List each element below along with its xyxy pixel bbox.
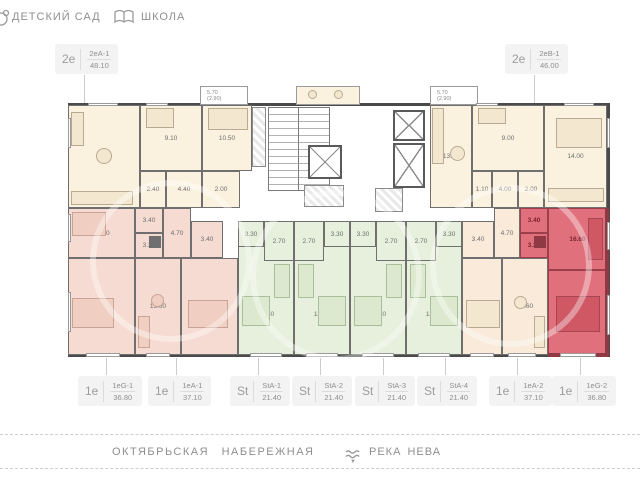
school-label: ШКОЛА [141,11,185,23]
street-label: ОКТЯБРЬСКАЯ НАБЕРЕЖНАЯ [112,446,315,458]
window [508,353,536,357]
kitchen-counter [298,264,314,298]
window [564,103,594,106]
chip-code: 1еG-2 [584,381,609,392]
bed [354,296,382,326]
room-area: 10.50 [219,135,235,142]
chip-code: StA-1 [260,381,283,392]
room-area: 9.10 [165,135,178,142]
window [68,118,71,148]
kitchen-counter [410,264,426,298]
chip-area: 21.40 [449,393,468,402]
room-area: 2.00 [215,186,228,193]
room: 2.70 [406,221,436,261]
room-area: 9.00 [502,135,515,142]
chip-type-label: St [237,384,248,398]
room-area: 2.70 [303,238,316,245]
sofa [534,316,545,348]
shaft [304,185,344,207]
bed [72,212,106,236]
window [418,353,450,357]
window [146,103,168,106]
room: 4.70 [494,208,520,258]
chip-type-label: 1е [85,384,98,398]
chip-area: 21.40 [262,393,281,402]
room: 4.00 [492,171,518,208]
shaft [252,107,266,167]
sofa [588,218,603,260]
window [306,353,338,357]
leader-line [445,358,446,375]
room-area: 3.30 [245,231,258,238]
teddy-bear-icon [0,7,11,27]
apartment-chip-1eG-1[interactable]: 1е 1еG-1 36.80 [78,376,142,406]
school-book-icon [113,9,135,25]
balcony-2eA-1: 5.70 (2.90) [200,86,248,105]
leader-line [258,358,259,375]
chip-type-label: 2е [512,52,525,66]
room-area: 2.70 [385,238,398,245]
room: 2.70 [264,221,294,261]
room-area: 2.70 [415,238,428,245]
room-area: 3.40 [528,217,541,224]
shared-balcony [296,86,360,105]
bed [146,108,174,128]
apartment-chip-StA-1[interactable]: St StA-1 21.40 [230,376,290,406]
chip-code: 2еВ-1 [537,49,561,60]
dashed-divider [0,434,640,435]
room: 3.40 [462,221,494,258]
room-area: 4.70 [171,230,184,237]
bed [318,296,346,326]
room-area: 14.00 [567,153,583,160]
bed [430,296,458,326]
table [334,90,343,99]
duct-block [149,236,161,248]
river-waves-icon [345,449,363,459]
table [514,296,527,309]
wardrobe [548,188,604,202]
room-area: 3.30 [331,231,344,238]
sofa [138,316,150,348]
table [151,294,164,307]
room-area: 16.60 [569,236,585,243]
room: 1.10 [472,171,492,208]
apartment-chip-StA-4[interactable]: St StA-4 21.40 [417,376,477,406]
chip-code: 2еА-1 [87,49,111,60]
chip-code: 1еG-1 [110,381,135,392]
floorplan-page: ДЕТСКИЙ САД ШКОЛА 2е 2еА-1 48.10 2е 2еВ-… [0,0,640,480]
table [450,146,465,161]
leader-line [517,358,518,375]
balcony-2eB-1: 5.70 (2.90) [430,86,478,105]
apartment-chip-2eA-1[interactable]: 2е 2еА-1 48.10 [55,44,118,74]
room-area: 4.00 [499,186,512,193]
leader-line [534,75,535,104]
room-area: 3.40 [472,236,485,243]
elevator [393,143,425,188]
room: 3.30 [238,221,264,247]
chip-area: 36.80 [113,393,132,402]
apartment-chip-StA-3[interactable]: St StA-3 21.40 [355,376,415,406]
window [476,103,498,106]
room-area: 3.30 [443,231,456,238]
chip-area: 37.10 [183,393,202,402]
apartment-chip-StA-2[interactable]: St StA-2 21.40 [292,376,352,406]
chip-code: StA-2 [322,381,345,392]
stair-rail [298,107,299,191]
leader-line [84,75,85,104]
room: 2.00 [202,171,240,208]
river-arrow-icon: ▼ [350,459,356,465]
chip-type-label: St [424,384,435,398]
bed [556,118,602,148]
apartment-chip-1eA-1[interactable]: 1е 1еА-1 37.10 [148,376,211,406]
room-area: 3.40 [201,236,214,243]
leader-line [383,358,384,375]
window [560,353,596,357]
window [250,353,282,357]
chip-area: 48.10 [90,61,109,70]
table [96,148,112,164]
window [607,118,610,148]
window [86,353,120,357]
window [607,295,610,335]
bed [242,296,270,326]
room: 3.30 [350,221,376,247]
leader-line [580,358,581,375]
bed [72,298,114,328]
chip-type-label: 2е [62,52,75,66]
room-area: 4.40 [178,186,191,193]
kitchen-counter [432,108,444,164]
room-area: 1.10 [476,186,489,193]
chip-code: 1еА-2 [521,381,545,392]
bed [188,300,228,328]
leader-line [176,358,177,375]
window [68,292,71,332]
window [607,222,610,250]
window [362,353,394,357]
room: 3.30 [436,221,462,247]
elevator [393,110,425,141]
room: 2.40 [140,171,166,208]
kitchen-counter [386,264,402,298]
room: 3.40 [520,208,548,233]
chip-type-label: 1е [155,384,168,398]
leader-line [106,358,107,375]
chip-code: 1еА-1 [180,381,204,392]
room: 3.40 [191,221,223,258]
dashed-divider [0,468,640,469]
bed [466,300,500,328]
balcony-half-area: (2.90) [437,96,451,102]
river-label: РЕКА НЕВА [369,446,441,458]
room: 2.70 [376,221,406,261]
room-area: 3.40 [143,217,156,224]
chip-type-label: St [299,384,310,398]
room: 4.40 [166,171,202,208]
chip-type-label: 1е [559,384,572,398]
room: 2.70 [294,221,324,261]
room-area: 3.30 [357,231,370,238]
window [88,103,118,106]
chip-type-label: 1е [496,384,509,398]
elevator [308,145,342,179]
chip-type-label: St [362,384,373,398]
chip-area: 21.40 [387,393,406,402]
kindergarten-label: ДЕТСКИЙ САД [12,11,101,23]
room: 4.70 [163,208,191,258]
window [470,353,494,357]
room-area: 4.70 [501,230,514,237]
chip-area: 46.00 [540,61,559,70]
chip-code: StA-4 [447,381,470,392]
table [308,90,317,99]
kitchen-counter [274,264,290,298]
shaft [375,188,403,212]
room-area: 2.40 [147,186,160,193]
bed [556,296,600,332]
room-area: 2.00 [525,186,538,193]
window [146,353,170,357]
chip-area: 21.40 [324,393,343,402]
apartment-chip-1eG-2[interactable]: 1е 1еG-2 36.80 [552,376,616,406]
apartment-chip-2eB-1[interactable]: 2е 2еВ-1 46.00 [505,44,568,74]
window [68,214,71,242]
chip-area: 36.80 [587,393,606,402]
leader-line [320,358,321,375]
room: 2.00 [518,171,544,208]
chip-area: 37.10 [524,393,543,402]
bed [208,108,248,130]
kitchen-counter [71,191,133,205]
sofa [71,112,84,146]
apartment-chip-1eA-2[interactable]: 1е 1еА-2 37.10 [489,376,552,406]
room: 3.40 [135,208,163,233]
chip-code: StA-3 [385,381,408,392]
duct-block [534,236,546,248]
balcony-half-area: (2.90) [207,96,221,102]
room-area: 2.70 [273,238,286,245]
wardrobe [478,108,506,124]
room: 3.30 [324,221,350,247]
